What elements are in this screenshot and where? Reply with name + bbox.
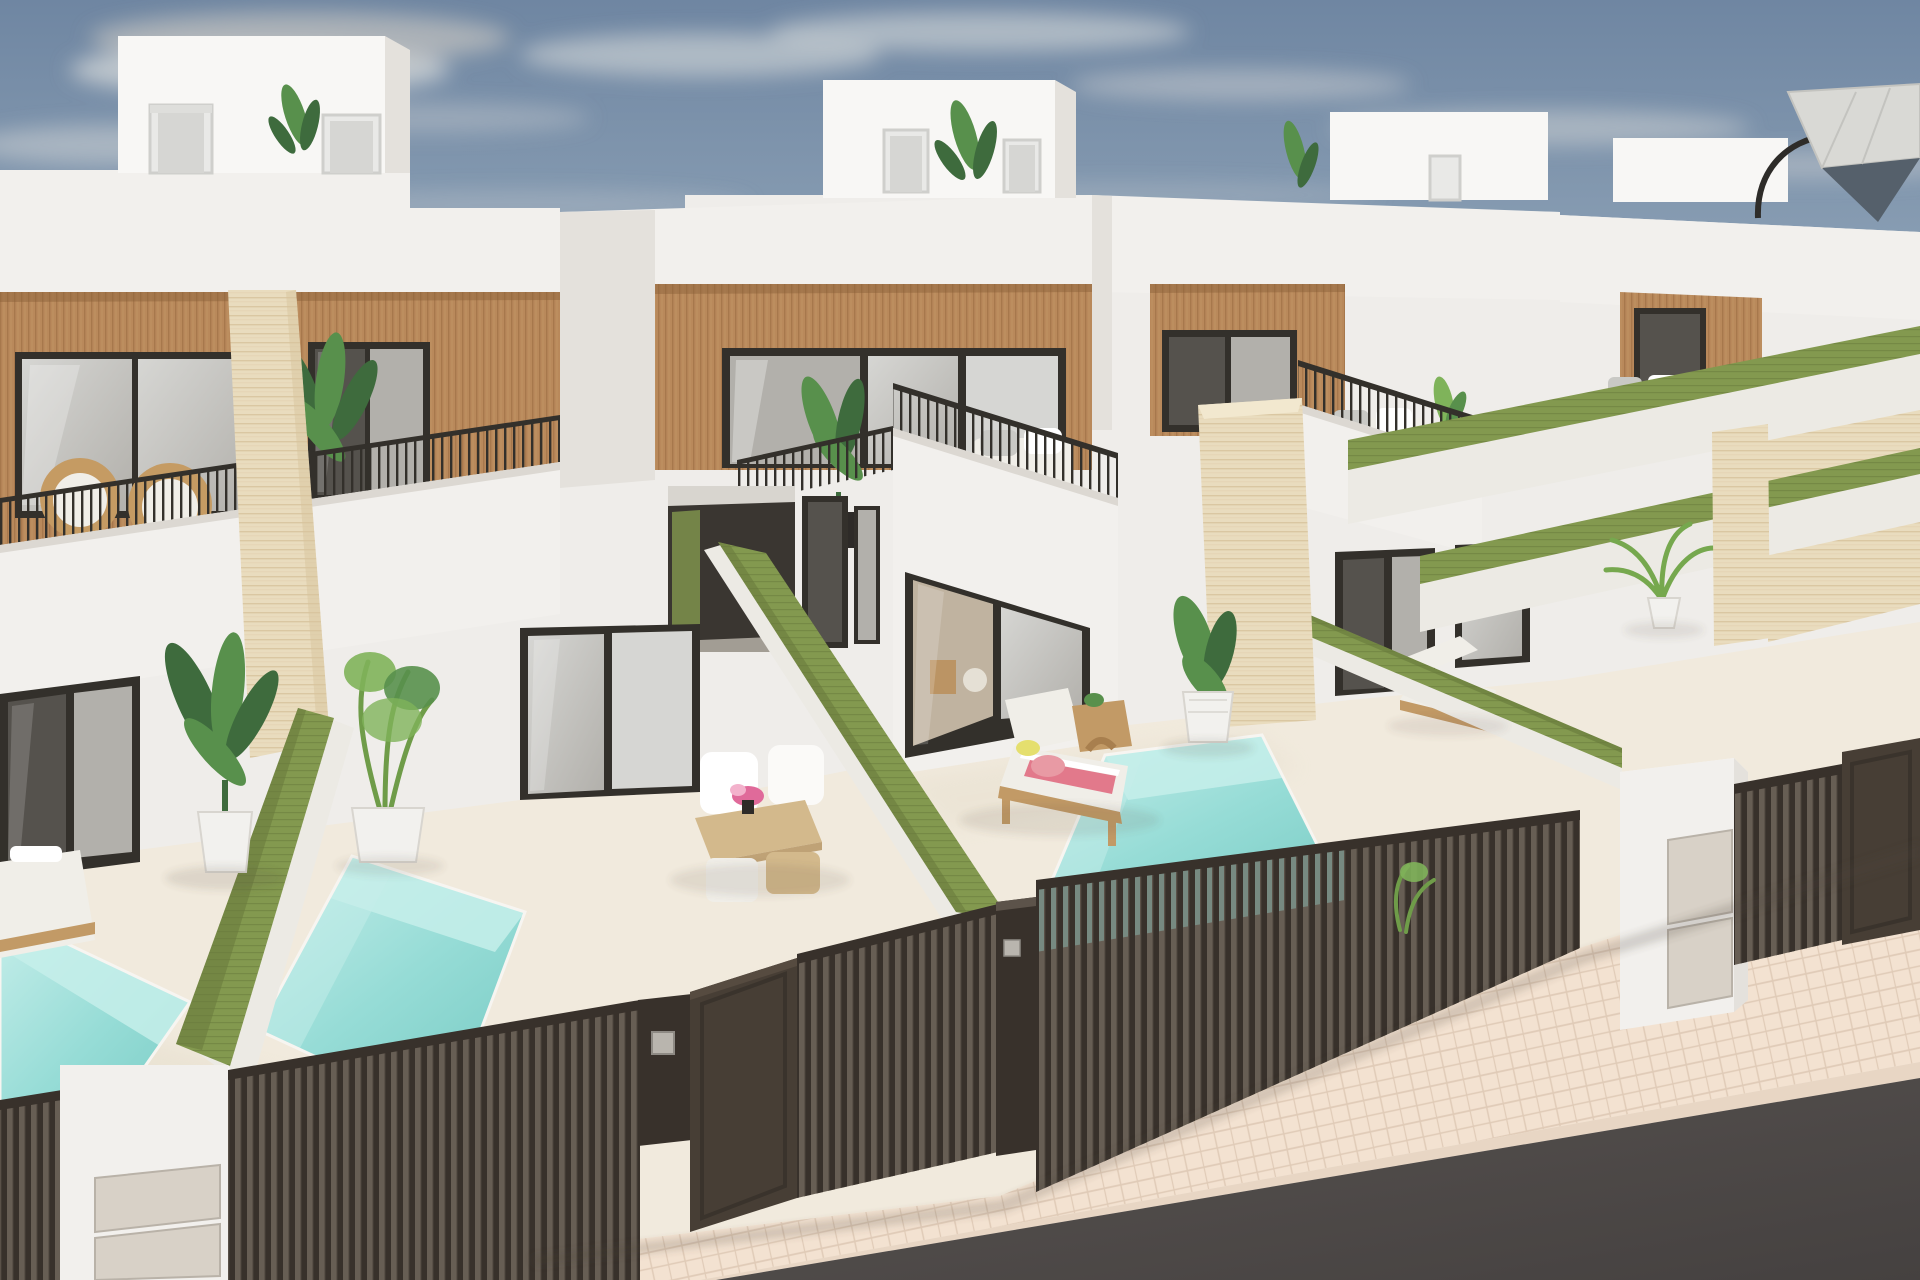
gate-solid-door (690, 958, 797, 1232)
gate-post (638, 994, 692, 1146)
roof-window (884, 130, 928, 192)
house-1-roof-box (118, 36, 410, 173)
house-2-ground-slider-left (520, 624, 700, 800)
letterbox-pillar-right (1620, 758, 1748, 1030)
letterbox-pillar-left (60, 1065, 240, 1280)
corner-gate (1842, 738, 1920, 945)
house-2-side-shade (560, 210, 655, 488)
travertine-pillar-chimney (1712, 424, 1770, 646)
roof-window (323, 115, 380, 173)
fence-right-run (1734, 764, 1842, 965)
patio-1-lounger (0, 846, 95, 958)
render-canvas (0, 0, 1920, 1280)
gate-keypad (652, 1032, 674, 1054)
gate-slatted (797, 904, 998, 1198)
scene-svg (0, 0, 1920, 1280)
house-2-roof-box (823, 80, 1076, 198)
fence-far-left (0, 1090, 62, 1280)
gate-pillar (996, 897, 1036, 1156)
roof-window (150, 105, 212, 173)
roof-window (1004, 140, 1040, 192)
house-3-side-shade (1092, 195, 1112, 430)
